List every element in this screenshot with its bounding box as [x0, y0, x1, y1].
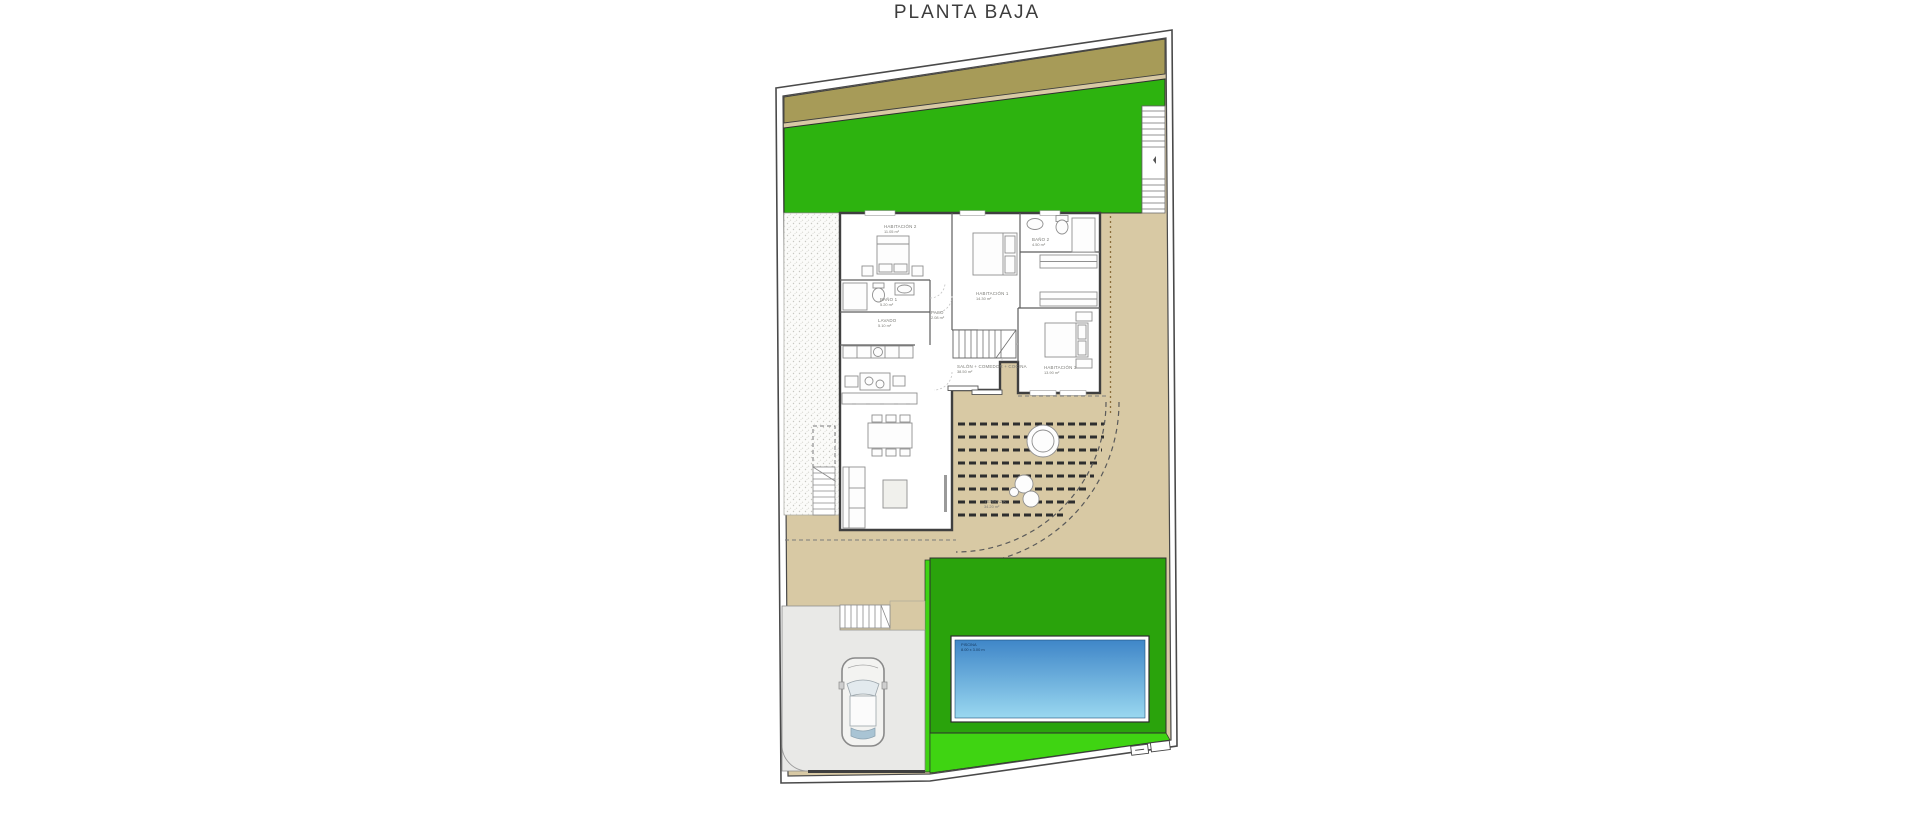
svg-text:5.20 m²: 5.20 m²: [880, 302, 894, 307]
sofa-icon: [843, 467, 865, 528]
exterior-stairs-right: [1142, 106, 1165, 213]
interior-stairs: [953, 330, 1016, 358]
dining-table: [868, 415, 912, 456]
svg-text:34.20 m²: 34.20 m²: [984, 504, 1000, 509]
svg-text:14.30 m²: 14.30 m²: [976, 296, 992, 301]
tv-icon: [944, 475, 947, 512]
svg-text:11.05 m²: 11.05 m²: [884, 229, 900, 234]
floorplan-drawing: PLANTA BAJA: [0, 0, 1920, 837]
svg-text:38.50 m²: 38.50 m²: [957, 369, 973, 374]
driveway-stairs: [840, 605, 890, 628]
exterior-stairs-left: [813, 467, 835, 515]
laundry-counter: [843, 346, 913, 358]
svg-text:4.50 m²: 4.50 m²: [1032, 242, 1046, 247]
car: [839, 658, 887, 746]
svg-text:5.10 m²: 5.10 m²: [878, 323, 892, 328]
rug-icon: [883, 480, 907, 508]
floorplan-page: PLANTA BAJA: [0, 0, 1920, 837]
svg-text:8.00 x 3.00 m: 8.00 x 3.00 m: [961, 647, 985, 652]
bed-icon-hab1: [973, 233, 1017, 275]
svg-text:2.08 m²: 2.08 m²: [931, 315, 945, 320]
page-title: PLANTA BAJA: [894, 2, 1040, 23]
svg-text:13.90 m²: 13.90 m²: [1044, 370, 1060, 375]
